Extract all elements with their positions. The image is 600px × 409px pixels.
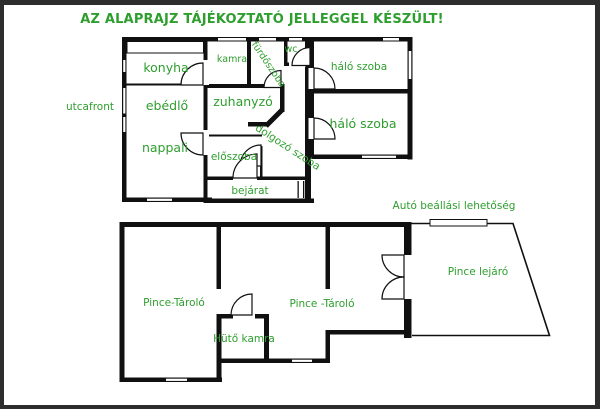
wall — [120, 222, 125, 382]
window — [292, 360, 312, 362]
room-label-pince-tarolo-bal: Pince-Tároló — [143, 297, 205, 309]
window — [166, 379, 187, 381]
window — [383, 38, 399, 41]
room-label-halo-szoba-also: háló szoba — [330, 116, 397, 131]
room-label-konyha: konyha — [143, 60, 188, 75]
floor-plan-svg: AZ ALAPRAJZ TÁJÉKOZTATÓ JELLEGGEL KÉSZÜL… — [0, 0, 600, 409]
wall — [326, 330, 405, 335]
door-arc — [231, 294, 252, 315]
room-label-halo-szoba-felso: háló szoba — [331, 61, 387, 73]
annotation-auto-beallas: Autó beállási lehetőség — [393, 200, 516, 212]
wall — [257, 177, 305, 181]
wall — [217, 359, 331, 364]
wall — [204, 177, 234, 181]
wall — [251, 84, 265, 88]
room-labels: konyha ebédlő nappali kamra fürdőszoba w… — [142, 40, 397, 197]
floor-plan-canvas: AZ ALAPRAJZ TÁJÉKOZTATÓ JELLEGGEL KÉSZÜL… — [0, 0, 600, 409]
wall — [204, 84, 252, 88]
room-label-eloszoba: előszoba — [211, 151, 257, 163]
wall — [208, 135, 263, 137]
wall — [127, 84, 186, 86]
upper-floor-plan: konyha ebédlő nappali kamra fürdőszoba w… — [122, 37, 413, 203]
window — [123, 88, 125, 114]
diagonal-wall — [266, 110, 282, 126]
room-label-nappali: nappali — [142, 140, 188, 155]
window — [362, 156, 396, 158]
window — [123, 117, 125, 132]
window — [289, 38, 302, 41]
wall — [280, 84, 285, 112]
double-door-leaf — [382, 277, 404, 299]
wall — [309, 89, 409, 94]
room-label-pince-lejaro: Pince lejáró — [448, 266, 508, 278]
lower-floor-plan: Pince-Tároló Pince -Tároló Hütő kamra Pi… — [120, 200, 550, 382]
room-label-ebedlo: ebédlő — [146, 98, 188, 113]
door-gap — [404, 255, 413, 299]
door-jamb-line — [298, 181, 299, 198]
wall — [204, 199, 315, 204]
double-door-leaf — [382, 255, 404, 277]
plan-disclaimer-title: AZ ALAPRAJZ TÁJÉKOZTATÓ JELLEGGEL KÉSZÜL… — [80, 11, 444, 27]
window — [430, 220, 487, 227]
room-label-kamra: kamra — [217, 54, 247, 65]
window — [123, 60, 125, 72]
door-jamb-line — [303, 181, 304, 198]
wall — [326, 330, 331, 363]
room-label-bejarat: bejárat — [231, 185, 268, 197]
wall — [217, 359, 222, 383]
room-label-huto-kamra: Hütő kamra — [213, 333, 275, 345]
wall — [120, 222, 412, 227]
street-front-label: utcafront — [66, 101, 114, 113]
window — [409, 51, 412, 79]
wall — [326, 227, 331, 289]
kitchen-counter — [127, 42, 204, 54]
room-label-pince-tarolo-jobb: Pince -Tároló — [289, 298, 354, 310]
wall — [305, 155, 413, 160]
window — [259, 38, 276, 41]
window — [147, 199, 172, 201]
wall — [217, 227, 222, 289]
room-label-zuhanyzo: zuhanyzó — [213, 94, 273, 109]
carport-outline — [412, 224, 550, 336]
window — [218, 38, 246, 41]
room-label-wc: wc — [285, 44, 298, 55]
